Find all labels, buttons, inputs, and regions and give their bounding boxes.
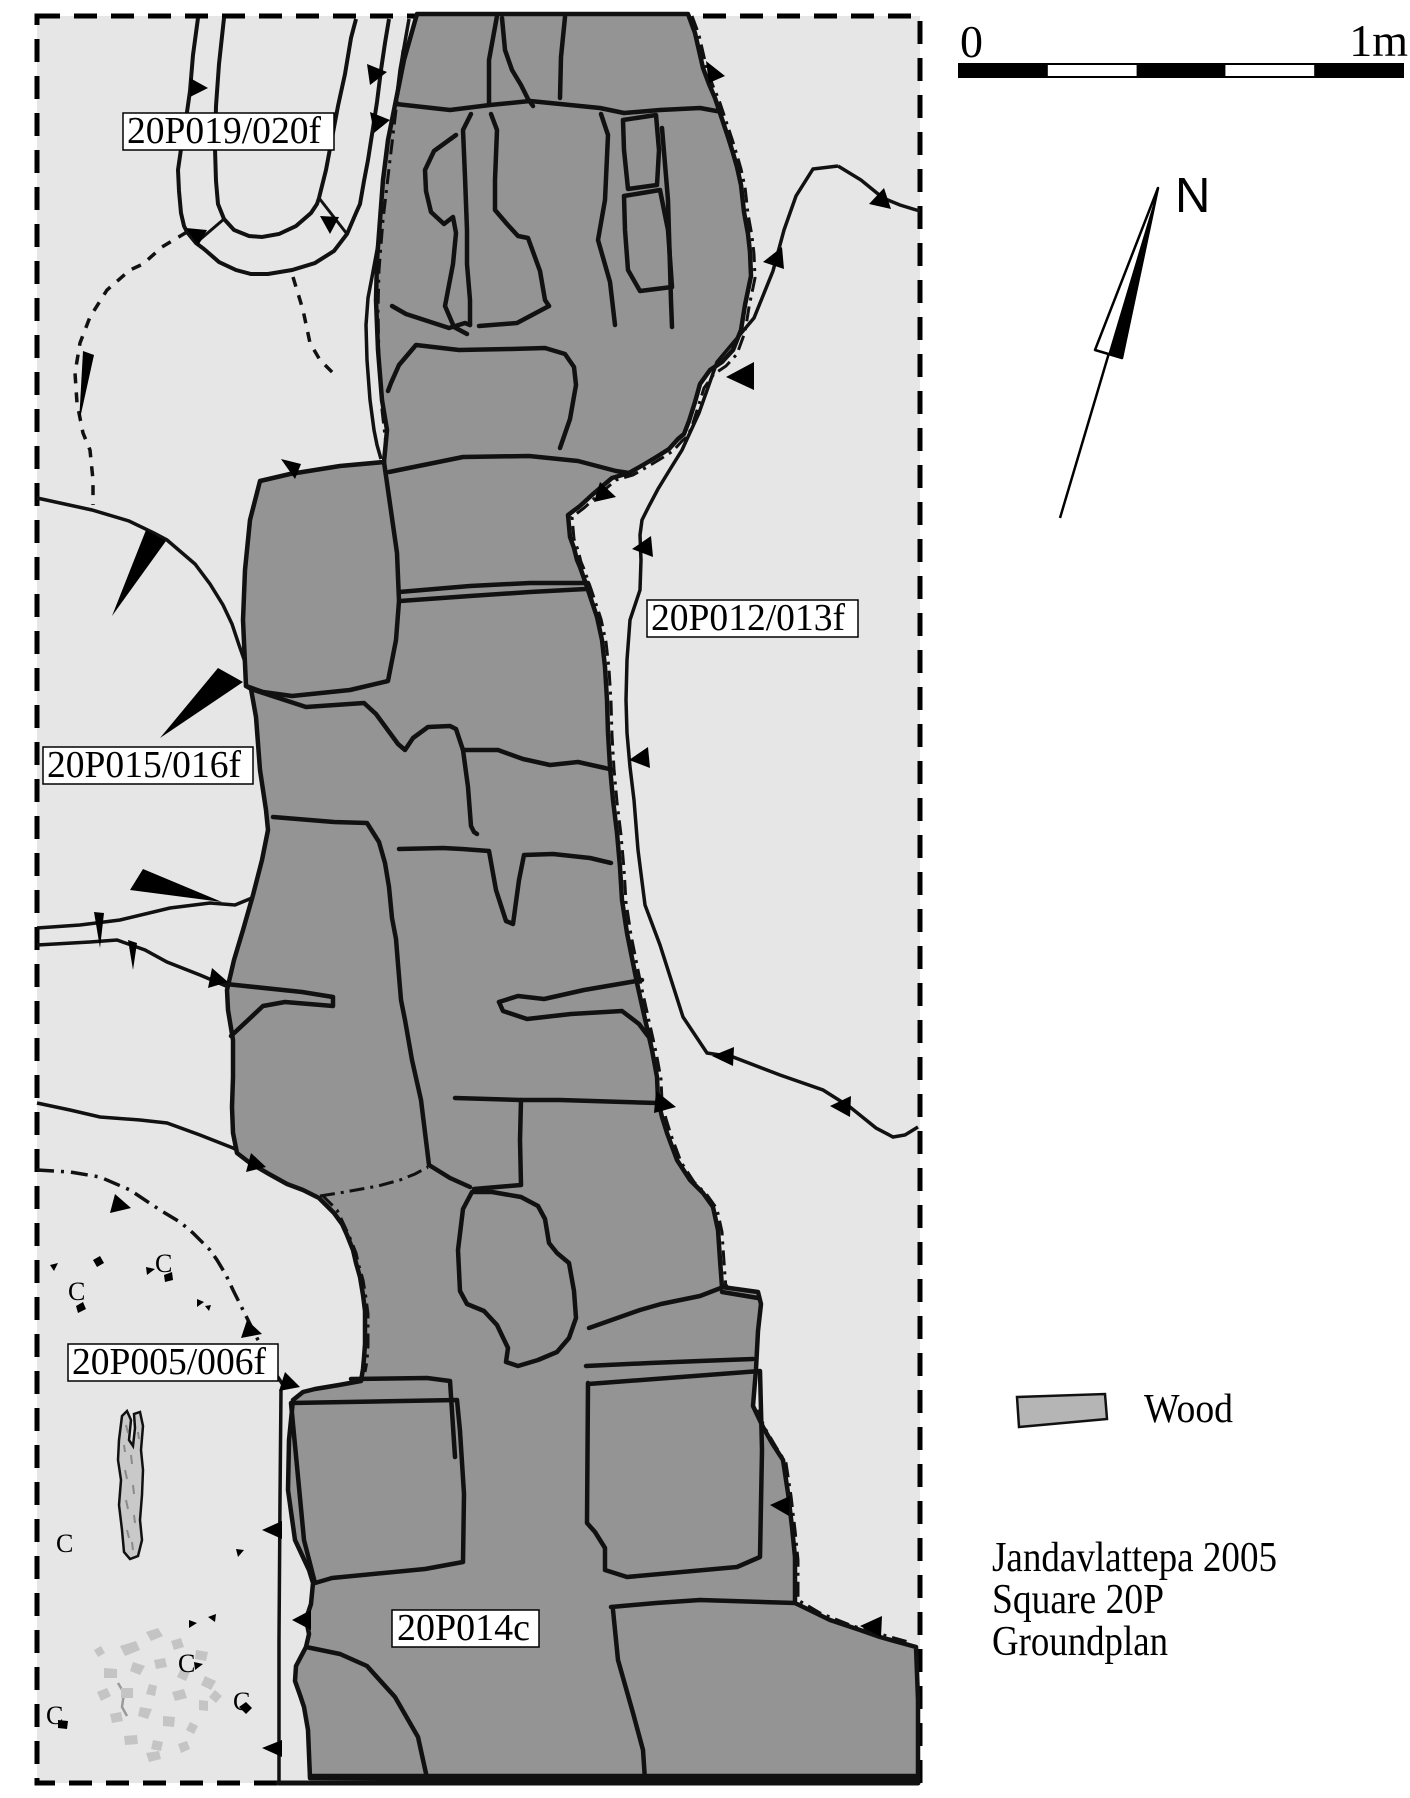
svg-text:Square 20P: Square 20P: [992, 1577, 1164, 1623]
svg-text:20P015/016f: 20P015/016f: [47, 744, 241, 786]
svg-text:C: C: [178, 1649, 195, 1678]
svg-text:C: C: [56, 1529, 73, 1558]
svg-text:1m: 1m: [1349, 15, 1408, 66]
svg-text:C: C: [68, 1277, 85, 1306]
svg-text:0: 0: [960, 16, 983, 67]
svg-text:20P019/020f: 20P019/020f: [127, 110, 321, 152]
svg-text:N: N: [1175, 169, 1210, 223]
svg-text:Jandavlattepa 2005: Jandavlattepa 2005: [992, 1535, 1277, 1581]
svg-text:Groundplan: Groundplan: [992, 1619, 1168, 1665]
svg-text:20P005/006f: 20P005/006f: [72, 1341, 266, 1383]
svg-text:20P014c: 20P014c: [397, 1607, 530, 1649]
svg-text:20P012/013f: 20P012/013f: [651, 597, 845, 639]
svg-text:Wood: Wood: [1144, 1385, 1233, 1431]
